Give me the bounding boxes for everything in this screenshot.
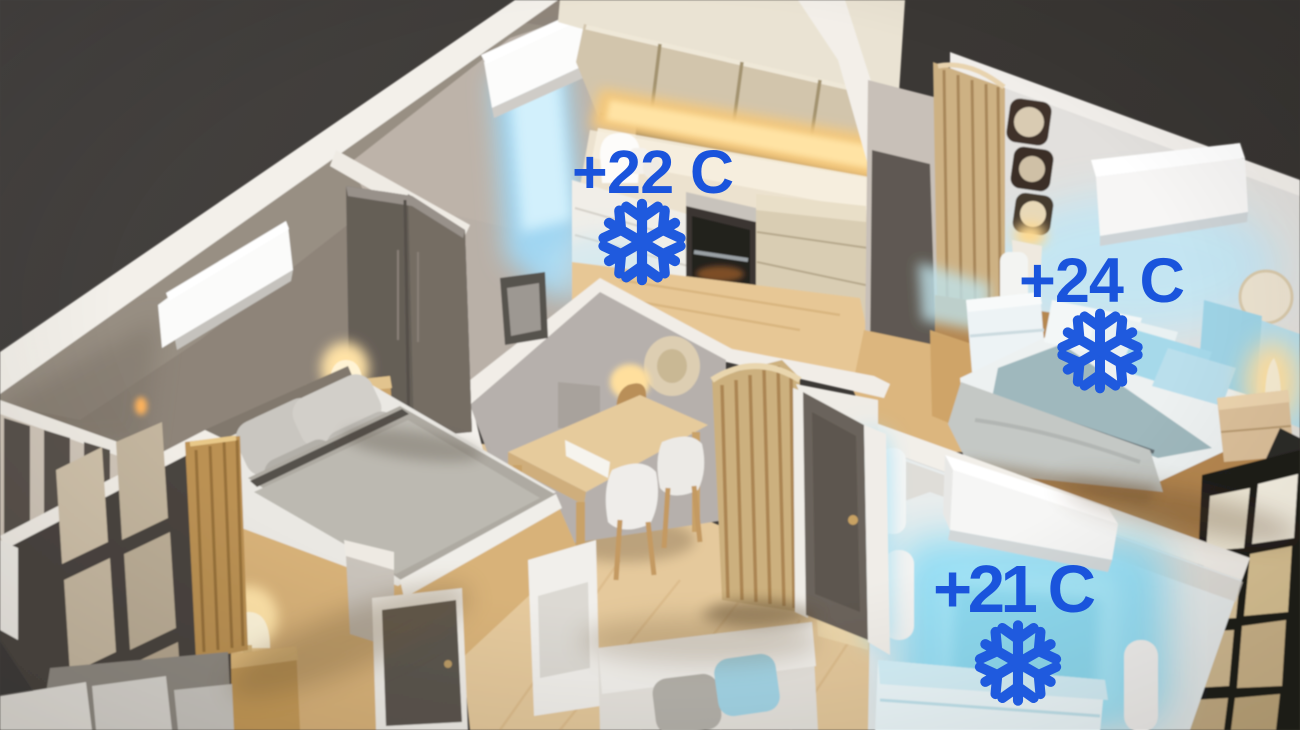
svg-text:+21 C: +21 C: [933, 552, 1096, 627]
svg-text:+22 C: +22 C: [572, 138, 734, 206]
svg-text:+24 C: +24 C: [1019, 246, 1185, 316]
